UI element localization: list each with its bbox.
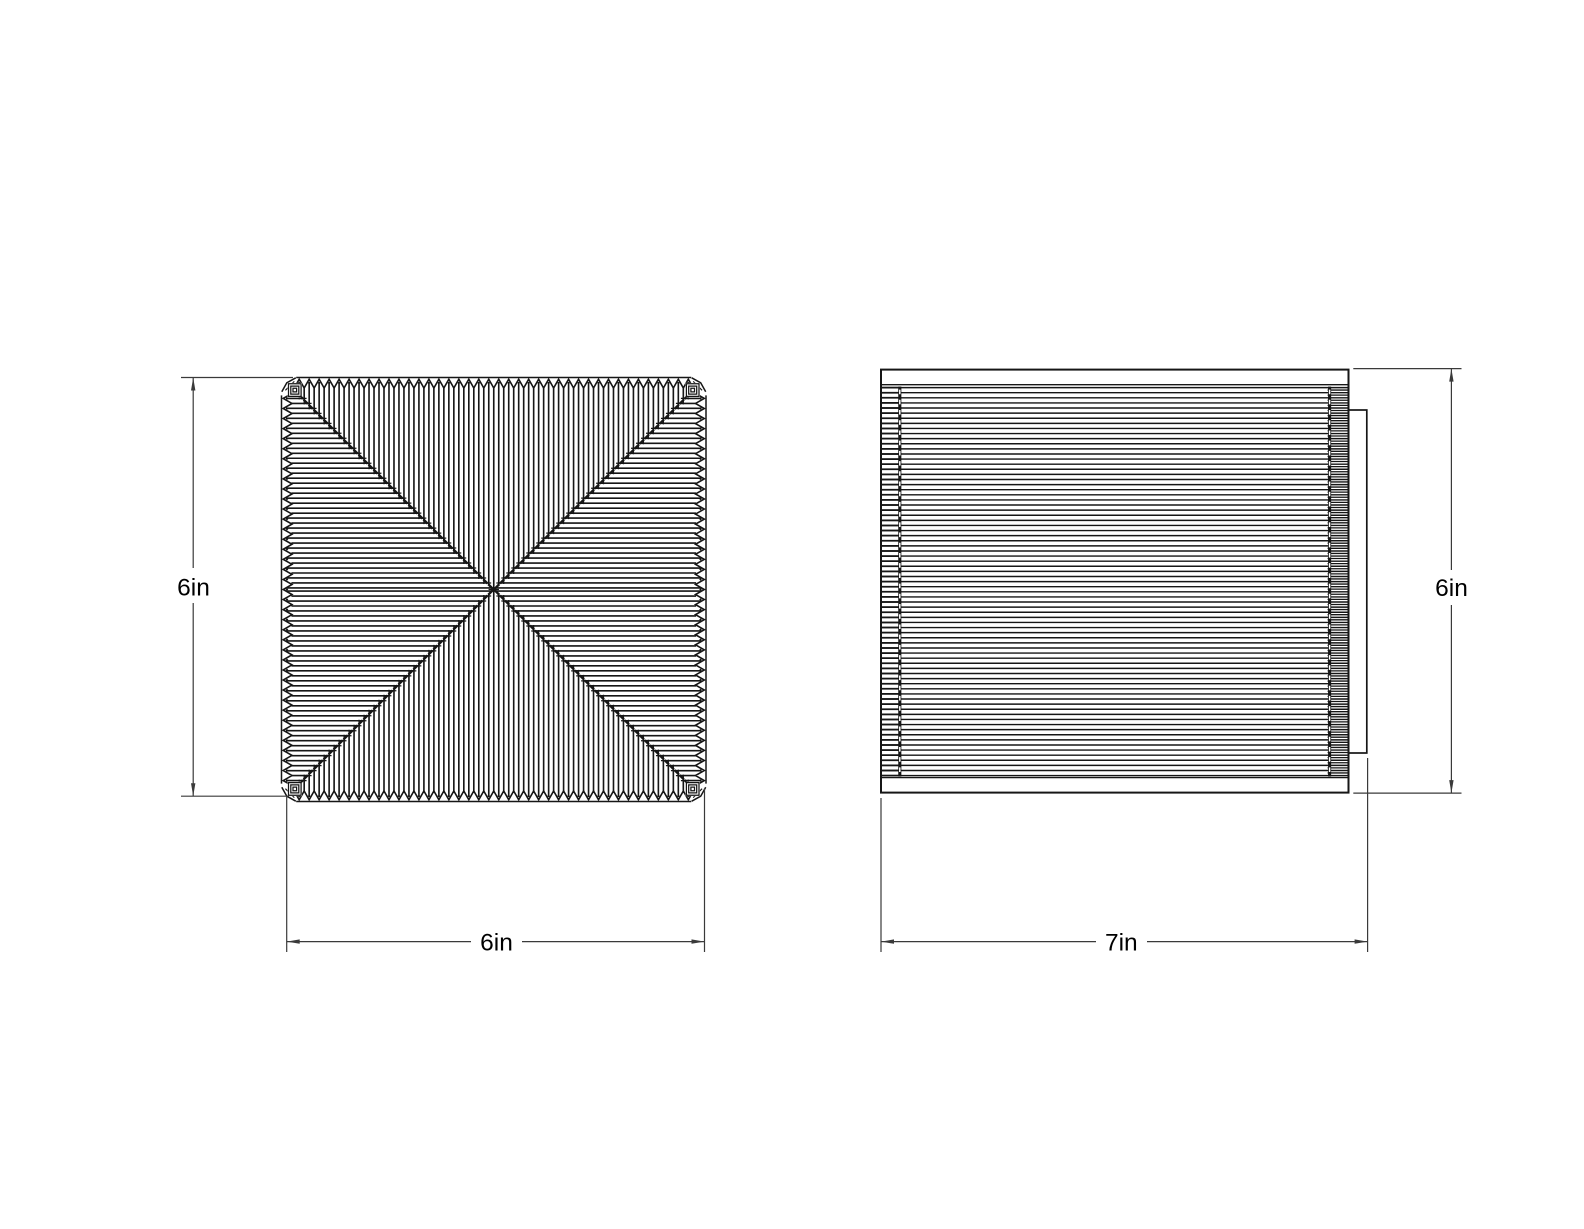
svg-text:6in: 6in xyxy=(480,929,513,956)
svg-text:6in: 6in xyxy=(1435,575,1468,602)
svg-text:7in: 7in xyxy=(1105,929,1138,956)
svg-text:6in: 6in xyxy=(177,575,210,602)
